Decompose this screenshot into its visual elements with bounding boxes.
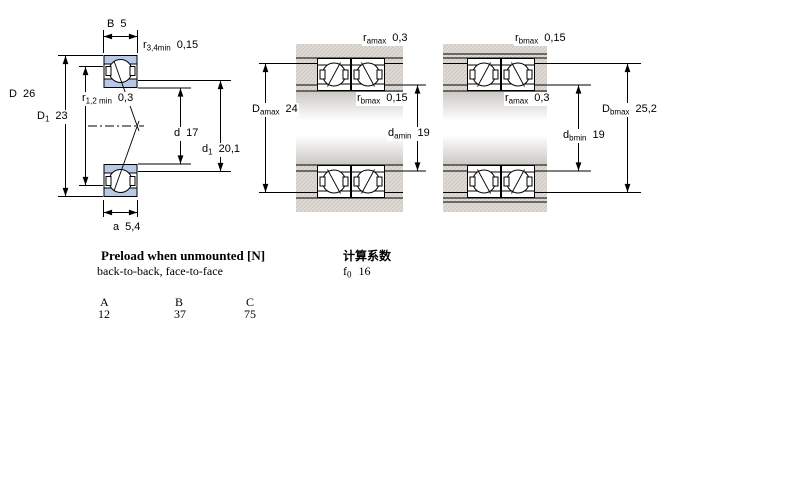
dim-symbol: D [602, 103, 610, 115]
dim-D: D26 [8, 88, 36, 102]
dim-damin: damin19 [387, 127, 431, 141]
arrangement-figure-b [443, 44, 641, 212]
left-bearing-cross-section [58, 30, 231, 217]
dim-value: 24 [286, 103, 298, 115]
dim-value: 23 [55, 110, 67, 122]
dim-value: 0,3 [534, 92, 549, 104]
dim-d1: d120,1 [201, 143, 241, 157]
dim-symbol: a [113, 221, 119, 233]
dim-value: 26 [23, 88, 35, 100]
dim-value: 5,4 [125, 221, 140, 233]
dim-r34min: r3,4min0,15 [142, 39, 199, 53]
dim-subscript: bmax [361, 97, 381, 106]
preload-value-c: 75 [244, 307, 256, 321]
calc-f0: f016 [343, 264, 371, 282]
dim-Damax: Damax24 [251, 103, 299, 117]
dim-value: 0,15 [544, 32, 565, 44]
dim-value: 0,15 [177, 39, 198, 51]
dim-value: 0,15 [386, 92, 407, 104]
preload-value-a: 12 [98, 307, 110, 321]
dim-d: d17 [173, 127, 199, 141]
bearing-dimension-drawing: B5 r3,4min0,15 D26 D123 r1,2 min0,3 d17 … [0, 0, 800, 500]
dim-symbol: D [9, 88, 17, 100]
dim-subscript: amin [394, 132, 411, 141]
dim-ramax-b: ramax0,3 [504, 92, 551, 106]
dim-subscript: bmin [569, 134, 586, 143]
dim-dbmin: dbmin19 [562, 129, 606, 143]
dim-subscript: 3,4min [147, 44, 171, 53]
dim-value: 16 [359, 264, 371, 278]
dim-subscript: 1 [208, 148, 212, 157]
dim-rbmax-b: rbmax0,15 [514, 32, 567, 46]
dim-value: 20,1 [219, 143, 240, 155]
dim-symbol: d [174, 127, 180, 139]
dim-subscript: 1,2 min [86, 97, 112, 106]
dim-value: 25,2 [636, 103, 657, 115]
dim-subscript: amax [260, 108, 280, 117]
dim-subscript: 1 [45, 115, 49, 124]
dim-symbol: B [107, 18, 114, 30]
dim-subscript: bmax [519, 37, 539, 46]
dim-D1: D123 [36, 110, 69, 124]
dim-subscript: amax [509, 97, 529, 106]
dim-subscript: bmax [610, 108, 630, 117]
dim-value: 17 [186, 127, 198, 139]
preload-value-b: 37 [174, 307, 186, 321]
dim-a: a5,4 [112, 221, 141, 235]
dim-ramax-a: ramax0,3 [362, 32, 409, 46]
dim-value: 19 [417, 127, 429, 139]
preload-subtitle: back-to-back, face-to-face [97, 264, 223, 278]
dim-subscript: 0 [347, 270, 352, 280]
dim-value: 5 [120, 18, 126, 30]
dim-value: 19 [592, 129, 604, 141]
dim-r12min: r1,2 min0,3 [81, 92, 134, 106]
dim-rbmax-a: rbmax0,15 [356, 92, 409, 106]
dim-Dbmax: Dbmax25,2 [601, 103, 658, 117]
dim-symbol: D [37, 110, 45, 122]
preload-title: Preload when unmounted [N] [101, 249, 265, 263]
calc-factors-title: 计算系数 [343, 249, 391, 263]
dim-value: 0,3 [118, 92, 133, 104]
dim-symbol: D [252, 103, 260, 115]
dim-value: 0,3 [392, 32, 407, 44]
dim-subscript: amax [367, 37, 387, 46]
dim-B: B5 [106, 18, 127, 32]
